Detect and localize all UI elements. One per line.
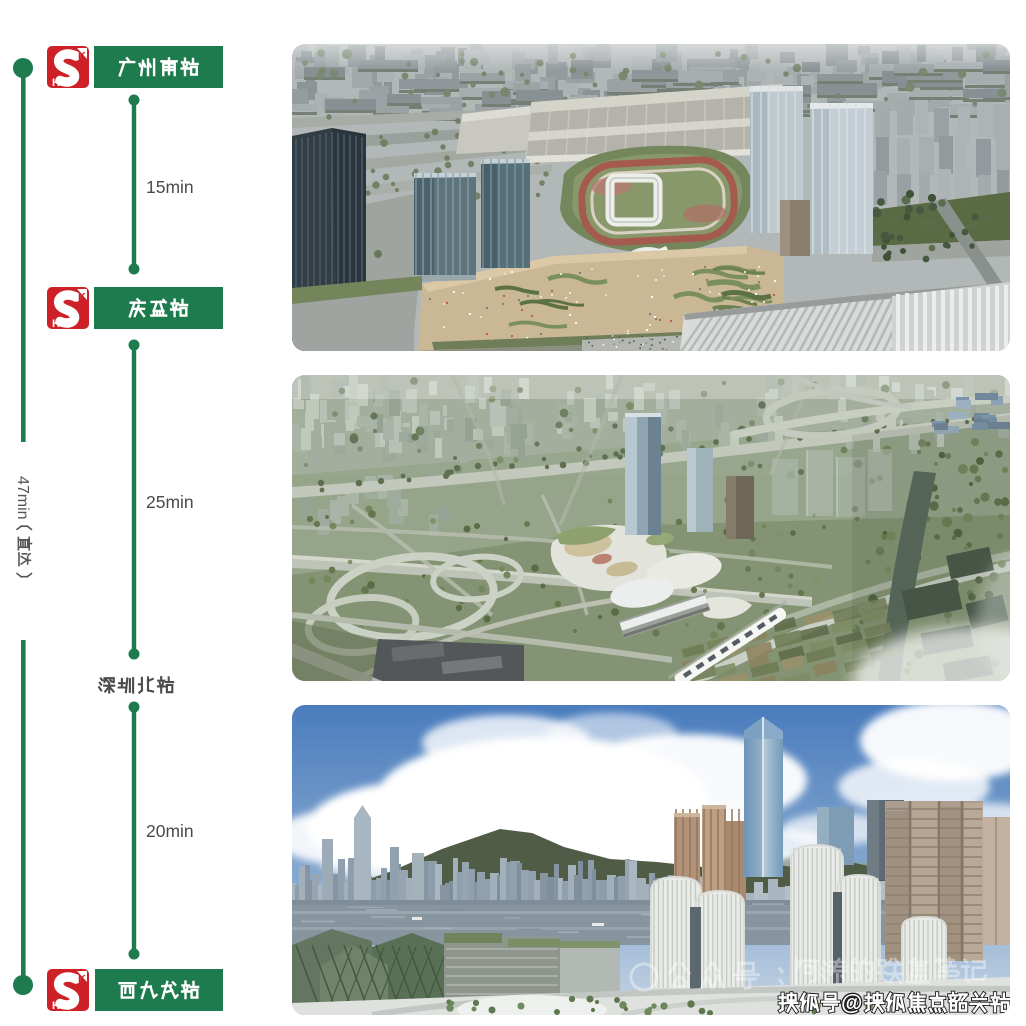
svg-text:15min: 15min: [146, 177, 194, 197]
svg-text:20min: 20min: [146, 821, 194, 841]
svg-text:47min: 47min: [14, 476, 31, 520]
svg-text:H: H: [52, 318, 60, 330]
svg-text:@: @: [841, 990, 862, 1015]
svg-text:H: H: [52, 77, 60, 89]
svg-text:K: K: [78, 292, 86, 304]
svg-text:H: H: [52, 1000, 60, 1012]
svg-text:K: K: [78, 51, 86, 63]
svg-text:K: K: [78, 974, 86, 986]
svg-text:25min: 25min: [146, 492, 194, 512]
